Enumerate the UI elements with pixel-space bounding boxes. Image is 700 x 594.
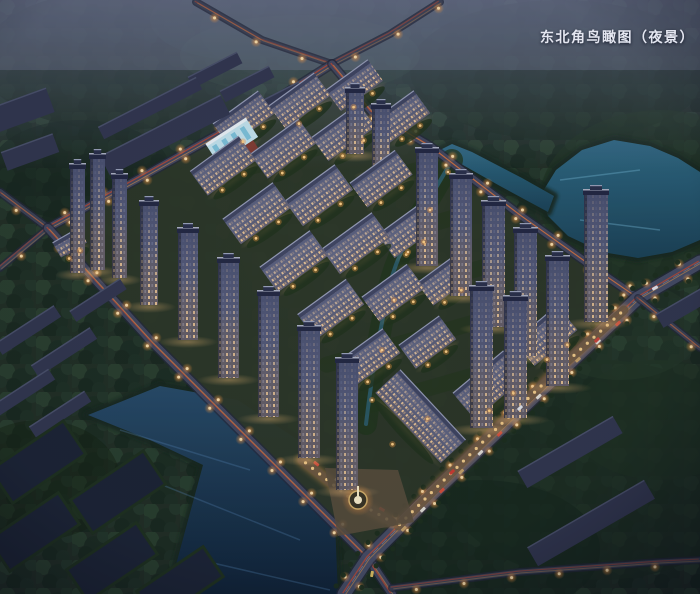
scene-svg	[0, 0, 700, 594]
vignette	[0, 0, 700, 594]
rendering-canvas: 东北角鸟瞰图（夜景）	[0, 0, 700, 594]
caption-title: 东北角鸟瞰图（夜景）	[540, 27, 695, 47]
